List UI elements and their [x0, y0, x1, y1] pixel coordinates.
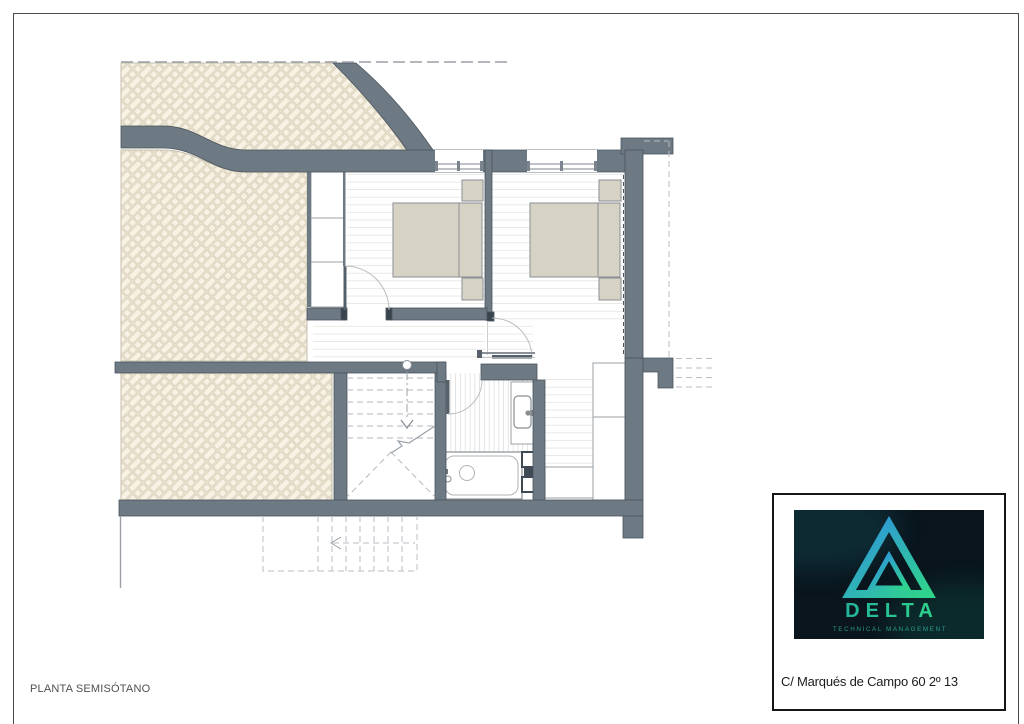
- nightstand: [599, 278, 621, 300]
- nightstand: [462, 180, 483, 201]
- bottom-wall: [119, 500, 643, 516]
- plan-title: PLANTA SEMISÓTANO: [30, 682, 296, 696]
- nightstand: [599, 180, 621, 201]
- stair-axis-circle: [403, 361, 412, 370]
- company-address: C/ Marqués de Campo 60 2º 13 03700 Dénia…: [774, 642, 1004, 724]
- dressing-floor: [545, 373, 593, 467]
- low-cabinet: [545, 467, 593, 498]
- drawing-sheet: PLANTA SEMISÓTANO VIVIENDA UNIFAMILIAR A…: [0, 0, 1024, 724]
- delta-logo: DELTA TECHNICAL MANAGEMENT: [794, 510, 984, 639]
- bath-top-wall: [481, 364, 537, 380]
- tap: [525, 410, 530, 415]
- logo-tagline: TECHNICAL MANAGEMENT: [833, 626, 947, 633]
- hall-floor: [313, 320, 485, 362]
- stairs-interior: [347, 361, 435, 498]
- mid-wall: [115, 362, 445, 373]
- stair-break-line: [391, 426, 435, 453]
- bath-left-wall: [435, 373, 446, 500]
- side-steps-dashed: [676, 359, 714, 388]
- window-2: [527, 150, 597, 172]
- wall-stub-right: [643, 358, 673, 388]
- company-info-box: DELTA TECHNICAL MANAGEMENT C/ Marqués de…: [772, 493, 1006, 711]
- bedroom-wall-left: [307, 308, 345, 320]
- bedroom-wall-right: [390, 308, 487, 320]
- window-1: [435, 150, 483, 172]
- stair-void-diagonals: [347, 452, 435, 497]
- bath-left-jamb: [437, 362, 446, 382]
- door-jamb: [487, 312, 494, 321]
- stair-direction-arrow: [401, 420, 413, 428]
- wardrobe-bedroom-2: [593, 363, 625, 500]
- stairs-exterior-dashed: [263, 516, 417, 571]
- hatch-lower: [121, 373, 332, 500]
- stairwell-left-wall: [334, 373, 347, 500]
- closet-bedroom-1: [307, 172, 346, 307]
- partition-bedrooms: [485, 150, 492, 320]
- stair-treads: [347, 378, 435, 438]
- bottom-wall-stub: [623, 516, 643, 538]
- nightstand: [462, 278, 483, 300]
- bathtub: [436, 452, 522, 499]
- title-block: PLANTA SEMISÓTANO VIVIENDA UNIFAMILIAR A…: [30, 654, 296, 724]
- right-wall-upper: [625, 150, 643, 358]
- right-wall-lower: [625, 358, 643, 500]
- hatch-middle: [121, 150, 307, 361]
- washbasin-counter: [511, 382, 534, 444]
- address-street: C/ Marqués de Campo 60 2º 13: [781, 674, 1002, 690]
- logo-wordmark: DELTA: [845, 600, 939, 622]
- bath-right-wall: [533, 380, 545, 500]
